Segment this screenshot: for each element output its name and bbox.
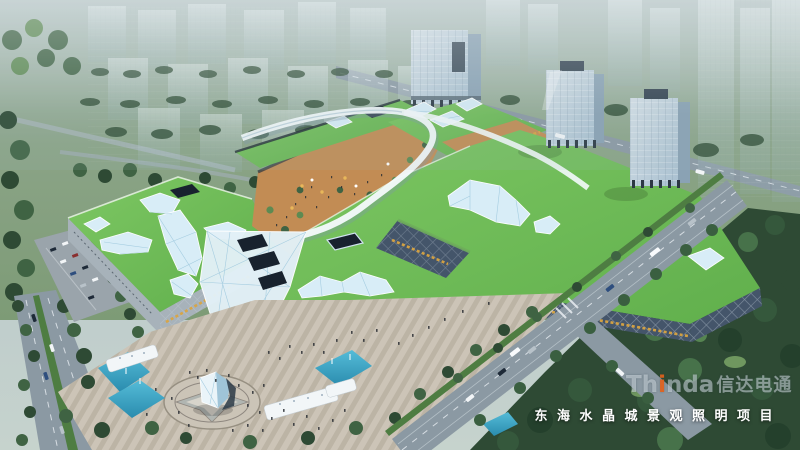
architectural-rendering: Thinda信达电通 东海水晶城景观照明项目 <box>0 0 800 450</box>
watermark-latin-prefix: Th <box>626 372 658 398</box>
watermark-accent-letter: i <box>658 372 666 398</box>
watermark-company-name: 信达电通 <box>716 375 792 396</box>
watermark-latin-suffix: nda <box>666 372 714 398</box>
watermark-logo: Thinda信达电通 <box>626 371 792 398</box>
project-title: 东海水晶城景观照明项目 <box>534 405 782 424</box>
haze <box>0 0 800 170</box>
